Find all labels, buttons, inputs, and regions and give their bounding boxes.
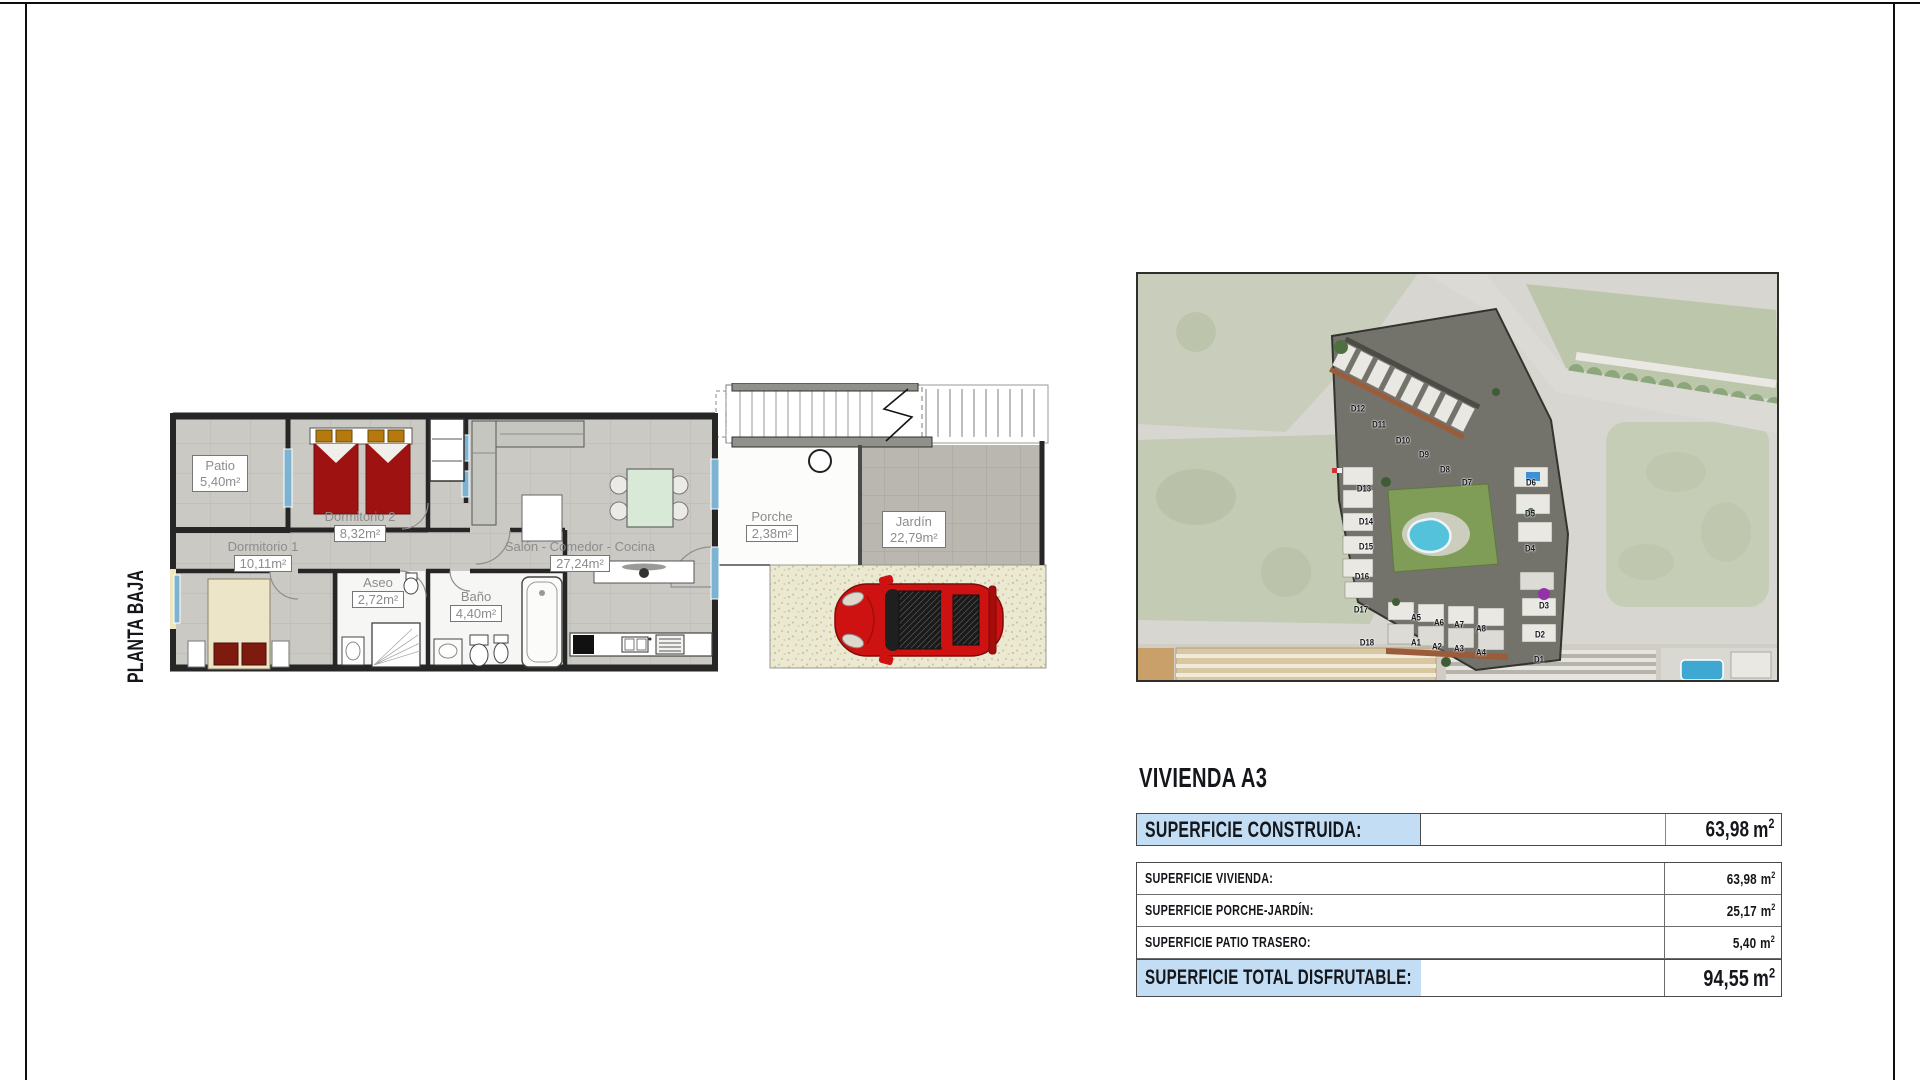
page-title-text: VIVIENDA A3 (1139, 762, 1267, 794)
room-area: 10,11m² (234, 555, 293, 573)
site-map: D12D11D10D9D8D7D6D5D4D3D2D1D13D14D15D16D… (1136, 272, 1779, 682)
room-area: 4,40m² (450, 605, 502, 623)
room-name: Jardín (896, 514, 932, 529)
superficie-total-row: SUPERFICIE TOTAL DISFRUTABLE: 94,55m2 (1137, 959, 1781, 996)
kitchen-counter (570, 633, 712, 656)
room-label-porche: Porche 2,38m² (726, 509, 818, 542)
map-unit-label: D15 (1359, 542, 1373, 553)
room-name: Salón - Comedor - Cocina (495, 539, 665, 555)
map-unit-label: D17 (1354, 604, 1368, 615)
map-unit-label: D12 (1351, 403, 1365, 414)
map-unit-label: A5 (1411, 613, 1421, 624)
map-unit-label: D11 (1372, 419, 1386, 430)
stairs (716, 383, 1048, 447)
superficie-construida-value-cell: 63,98m2 (1666, 814, 1781, 845)
map-unit-label: D14 (1359, 517, 1373, 528)
room-area: 8,32m² (334, 525, 386, 543)
map-unit-label: D10 (1396, 435, 1410, 446)
map-unit-label: A6 (1434, 617, 1444, 628)
floor-label: PLANTA BAJA (123, 563, 149, 683)
map-unit-label: D6 (1526, 478, 1536, 489)
surface-breakdown-table: SUPERFICIE VIVIENDA: 63,98m2 SUPERFICIE … (1136, 862, 1782, 997)
map-unit-label: A4 (1476, 647, 1486, 658)
superficie-construida-row: SUPERFICIE CONSTRUIDA: 63,98m2 (1136, 813, 1782, 846)
page-border-left (25, 2, 27, 1080)
room-label-dormitorio2: Dormitorio 2 8,32m² (290, 509, 430, 542)
map-unit-label: A2 (1432, 642, 1442, 653)
porch-floor (715, 445, 860, 565)
map-unit-label: D18 (1360, 638, 1374, 649)
room-label-bano: Baño 4,40m² (432, 589, 520, 622)
superficie-construida-empty-cell (1421, 814, 1666, 845)
table-row: SUPERFICIE PORCHE-JARDÍN: 25,17m2 (1137, 895, 1781, 927)
superficie-total-value-cell: 94,55m2 (1665, 960, 1781, 996)
superficie-construida-label-cell: SUPERFICIE CONSTRUIDA: (1137, 814, 1421, 845)
superficie-total-label-cell: SUPERFICIE TOTAL DISFRUTABLE: (1137, 960, 1421, 996)
room-name: Patio (205, 458, 235, 473)
room-name: Porche (726, 509, 818, 525)
room-label-jardin: Jardín 22,79m² (882, 511, 946, 548)
room-area: 5,40m² (200, 474, 240, 489)
room-label-patio: Patio 5,40m² (192, 455, 248, 492)
room-area: 22,79m² (890, 530, 938, 545)
map-unit-label: D13 (1357, 483, 1371, 494)
map-unit-label: A3 (1454, 644, 1464, 655)
map-unit-label: A1 (1411, 638, 1421, 649)
map-unit-label: D2 (1535, 629, 1545, 640)
floor-plan: Patio 5,40m² Dormitorio 2 8,32m² Dormito… (170, 383, 1050, 688)
map-unit-labels: D12D11D10D9D8D7D6D5D4D3D2D1D13D14D15D16D… (1136, 272, 1779, 682)
room-name: Dormitorio 2 (290, 509, 430, 525)
map-unit-label: D7 (1462, 478, 1472, 489)
map-unit-label: D5 (1525, 508, 1535, 519)
stair-landing-top (732, 383, 918, 391)
map-unit-label: D8 (1440, 465, 1450, 476)
room-label-dormitorio1: Dormitorio 1 10,11m² (198, 539, 328, 572)
room-area: 27,24m² (550, 555, 610, 573)
map-unit-label: D3 (1539, 601, 1549, 612)
map-unit-label: A7 (1454, 620, 1464, 631)
map-unit-label: D4 (1525, 544, 1535, 555)
room-name: Aseo (338, 575, 418, 591)
table-row: SUPERFICIE VIVIENDA: 63,98m2 (1137, 863, 1781, 895)
porch-column (809, 450, 831, 472)
coffee-table (522, 495, 562, 541)
room-area: 2,72m² (352, 591, 404, 609)
page-border-top (0, 2, 1920, 4)
map-unit-label: D1 (1534, 654, 1544, 665)
room-area: 2,38m² (746, 525, 798, 543)
floor-label-text: PLANTA BAJA (123, 570, 149, 683)
map-unit-label: D9 (1419, 449, 1429, 460)
room-label-salon: Salón - Comedor - Cocina 27,24m² (495, 539, 665, 572)
map-unit-label: A8 (1476, 624, 1486, 635)
closet (430, 419, 464, 481)
room-name: Baño (432, 589, 520, 605)
room-label-aseo: Aseo 2,72m² (338, 575, 418, 608)
stair-landing-bottom (732, 437, 932, 447)
table-row: SUPERFICIE PATIO TRASERO: 5,40m2 (1137, 927, 1781, 959)
page-border-right (1893, 2, 1895, 1080)
map-unit-label: D16 (1355, 572, 1369, 583)
room-name: Dormitorio 1 (198, 539, 328, 555)
appliance (573, 635, 594, 654)
car (835, 574, 1003, 665)
page-title: VIVIENDA A3 (1139, 762, 1317, 794)
